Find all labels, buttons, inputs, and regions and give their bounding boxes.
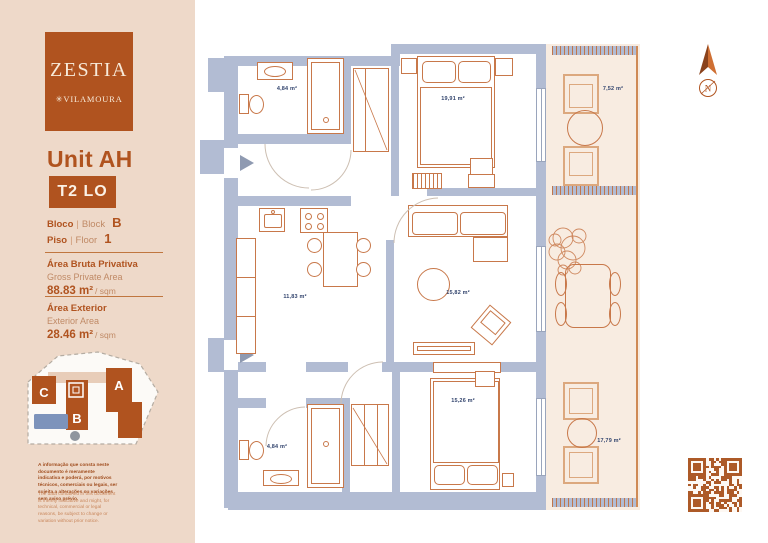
shower bbox=[307, 58, 344, 134]
wall-bathroom2-top bbox=[231, 398, 266, 408]
room-label-bedroom-bottom: 15,26 m² bbox=[433, 398, 493, 404]
room-label-terrace-bottom: 17,79 m² bbox=[585, 438, 633, 444]
wall-mid bbox=[306, 362, 348, 372]
window bbox=[536, 246, 546, 332]
railing bbox=[552, 186, 636, 195]
nightstand bbox=[495, 58, 513, 76]
block-row: Bloco|BlockB bbox=[47, 215, 121, 230]
sofa bbox=[408, 205, 508, 237]
terrace-table bbox=[567, 110, 603, 146]
chair bbox=[307, 262, 322, 277]
railing bbox=[552, 46, 636, 55]
chair bbox=[307, 238, 322, 253]
north-compass-icon: N bbox=[699, 44, 717, 97]
floor-row: Piso|Floor1 bbox=[47, 231, 111, 246]
wall-step bbox=[200, 140, 224, 174]
sofa-chaise bbox=[473, 237, 508, 262]
boundary-line bbox=[636, 46, 638, 507]
unit-title: Unit AH bbox=[47, 146, 133, 173]
chair bbox=[356, 262, 371, 277]
site-map: C B A bbox=[18, 350, 168, 458]
floor-value: 1 bbox=[104, 231, 111, 246]
chair bbox=[609, 272, 621, 296]
bench bbox=[475, 371, 495, 387]
cooktop bbox=[300, 208, 328, 233]
kitchen-sink bbox=[259, 208, 285, 232]
window bbox=[536, 398, 546, 476]
terrace-chair bbox=[563, 74, 599, 114]
terrace-chair bbox=[563, 382, 599, 420]
nightstand bbox=[401, 58, 417, 74]
nightstand bbox=[502, 473, 514, 487]
kitchen-cabinets bbox=[236, 238, 256, 354]
chair bbox=[609, 302, 621, 326]
floor-plan: 4,84 m² 19,91 m² 7,52 m² 11,83 m² 15,82 … bbox=[195, 0, 768, 543]
chair bbox=[555, 302, 567, 326]
unit-type-badge: T2 LO bbox=[49, 176, 116, 208]
washbasin bbox=[257, 62, 293, 80]
dresser bbox=[468, 174, 495, 188]
wall-bedroom2-left bbox=[392, 372, 400, 492]
bed bbox=[417, 56, 495, 168]
room-label-bathroom-top: 4,84 m² bbox=[265, 86, 309, 92]
qr-code bbox=[688, 458, 742, 512]
chair bbox=[555, 272, 567, 296]
tv-console bbox=[413, 342, 475, 355]
site-map-block-c: C bbox=[39, 385, 49, 400]
exterior-area-block: Área Exterior Exterior Area 28.46 m²/ sq… bbox=[47, 303, 177, 341]
wall-bedroom1-living bbox=[427, 188, 536, 196]
toilet-bowl bbox=[249, 95, 264, 114]
round-rug bbox=[417, 268, 450, 301]
wall-top-bedroom bbox=[394, 44, 541, 54]
zestia-logo: ZESTIA ✳VILAMOURA bbox=[45, 32, 133, 131]
dining-table bbox=[565, 264, 611, 328]
exterior-area-value: 28.46 m² bbox=[47, 329, 93, 341]
radiator bbox=[412, 173, 442, 189]
room-label-terrace-top: 7,52 m² bbox=[591, 86, 635, 92]
wall-hall-bedroom1 bbox=[391, 54, 399, 196]
toilet-tank bbox=[239, 94, 249, 114]
brand-location: ✳VILAMOURA bbox=[55, 94, 122, 105]
private-area-block: Área Bruta Privativa Gross Private Area … bbox=[47, 259, 177, 297]
wall-kitchen-living bbox=[386, 240, 394, 366]
entrance-opening bbox=[224, 148, 238, 178]
site-map-block-b: B bbox=[72, 411, 81, 426]
washbasin bbox=[263, 470, 299, 486]
terrace-chair bbox=[563, 446, 599, 484]
wall-kitchen-top bbox=[231, 196, 351, 206]
wardrobe bbox=[351, 404, 389, 466]
shower bbox=[307, 404, 344, 488]
bed bbox=[430, 378, 500, 490]
divider bbox=[45, 252, 163, 253]
entrance-arrow-icon bbox=[240, 155, 254, 171]
disclaimer-en: The data contained in this document is m… bbox=[38, 492, 118, 526]
wall-bottom bbox=[228, 492, 546, 510]
wall-step bbox=[208, 58, 224, 92]
window bbox=[536, 88, 546, 162]
terrace-chair bbox=[563, 146, 599, 186]
brochure-page: ZESTIA ✳VILAMOURA Unit AH T2 LO Bloco|Bl… bbox=[0, 0, 768, 543]
room-label-bathroom-bottom: 4,84 m² bbox=[255, 444, 299, 450]
room-label-bedroom-top: 19,91 m² bbox=[423, 96, 483, 102]
room-label-kitchen: 11,83 m² bbox=[273, 294, 317, 300]
railing bbox=[552, 498, 636, 507]
divider bbox=[45, 296, 163, 297]
compass-north-label: N bbox=[705, 84, 712, 94]
wall-bathroom1-bottom bbox=[231, 134, 351, 144]
wardrobe bbox=[353, 68, 389, 152]
site-map-block-a: A bbox=[114, 378, 124, 393]
toilet-tank bbox=[239, 440, 249, 460]
brand-name: ZESTIA bbox=[50, 59, 128, 82]
block-value: B bbox=[112, 215, 121, 230]
room-label-living: 15,82 m² bbox=[428, 290, 488, 296]
chair bbox=[356, 238, 371, 253]
kitchen-island bbox=[323, 232, 358, 287]
wall-bathroom1 bbox=[343, 56, 351, 144]
wall-step bbox=[208, 338, 224, 372]
sidebar: ZESTIA ✳VILAMOURA Unit AH T2 LO Bloco|Bl… bbox=[0, 0, 195, 543]
